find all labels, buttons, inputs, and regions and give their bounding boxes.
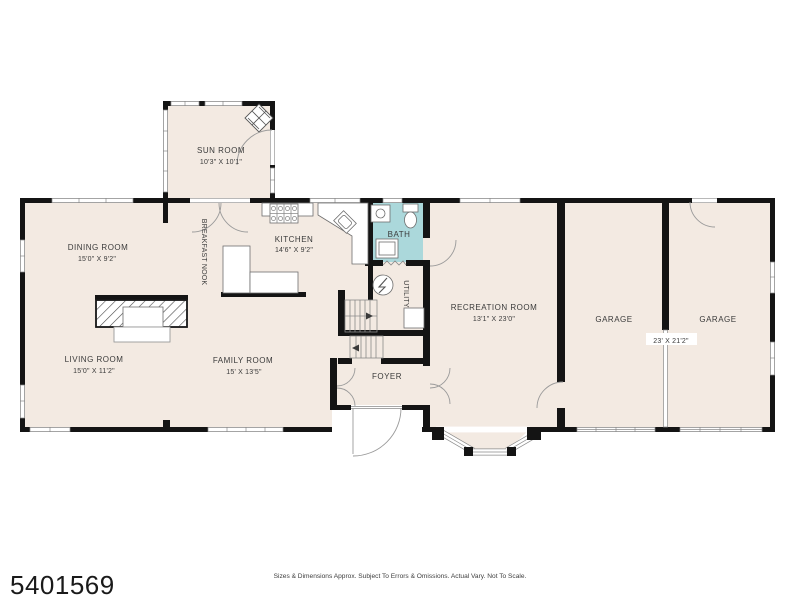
dining-room-dims: 15'0" X 9'2": [78, 256, 116, 263]
recreation-room-label: RECREATION ROOM: [451, 303, 537, 312]
window: [770, 262, 774, 293]
door-opening: [270, 130, 274, 165]
window: [20, 240, 24, 272]
stove-fixture: [270, 204, 298, 223]
foyer-label: FOYER: [372, 372, 402, 381]
window: [30, 427, 70, 431]
bath-label: BATH: [388, 230, 411, 239]
garage-door: [680, 427, 762, 431]
entry-alcove: [332, 410, 423, 432]
kitchen-dims: 14'6" X 9'2": [275, 247, 313, 254]
sun-room-dims: 10'3" X 10'1": [200, 159, 242, 166]
garage-right-label: GARAGE: [699, 315, 736, 324]
living-room-label: LIVING ROOM: [65, 355, 124, 364]
garage-door: [577, 427, 655, 431]
water-heater-icon: [373, 275, 393, 295]
window: [770, 342, 774, 375]
family-room-dims: 15' X 13'5": [226, 369, 262, 376]
window: [310, 198, 360, 202]
bath-sink-fixture: [371, 205, 390, 222]
hearth: [114, 327, 170, 342]
window: [52, 198, 133, 202]
dining-room-label: DINING ROOM: [68, 243, 129, 252]
window: [383, 198, 402, 202]
window: [20, 385, 24, 418]
window: [171, 101, 199, 105]
floor-plan: SUN ROOM 10'3" X 10'1" DINING ROOM 15'0"…: [0, 0, 800, 600]
sun-room-label: SUN ROOM: [197, 146, 245, 155]
family-room-label: FAMILY ROOM: [213, 356, 273, 365]
door-opening: [190, 198, 250, 202]
utility-label: UTILITY: [402, 280, 409, 308]
utility-appliance: [404, 308, 424, 328]
window: [205, 101, 242, 105]
floors: [23, 104, 772, 451]
window: [208, 427, 283, 431]
shower-fixture: [376, 239, 398, 258]
breakfast-nook-label: BREAKFAST NOOK: [200, 219, 207, 286]
garage-dims: 23' X 21'2": [653, 338, 689, 345]
recreation-room-dims: 13'1" X 23'0": [473, 316, 515, 323]
window: [163, 110, 167, 192]
garage-left-label: GARAGE: [595, 315, 632, 324]
toilet-fixture: [403, 204, 418, 228]
kitchen-label: KITCHEN: [275, 235, 314, 244]
disclaimer-text: Sizes & Dimensions Approx. Subject To Er…: [0, 573, 800, 580]
window: [460, 198, 520, 202]
front-door-opening: [351, 405, 402, 410]
door-opening: [692, 198, 717, 202]
window: [270, 168, 274, 193]
living-room-dims: 15'0" X 11'2": [73, 368, 115, 375]
